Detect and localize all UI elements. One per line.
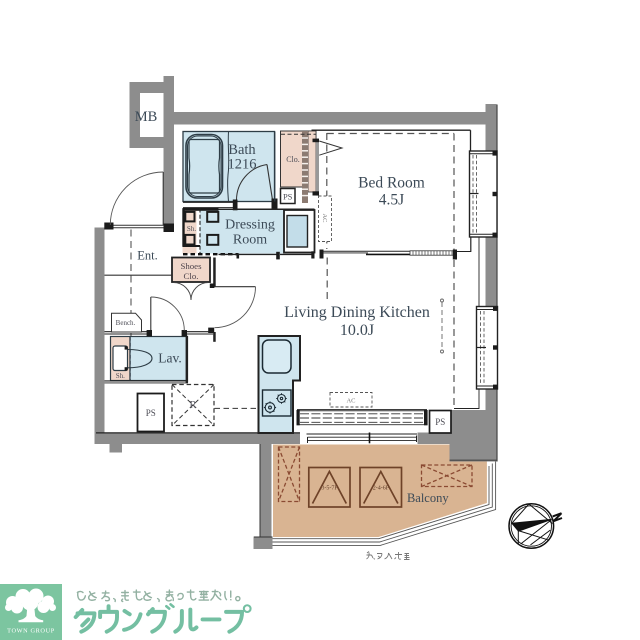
svg-text:Sh.: Sh.: [116, 372, 125, 380]
svg-text:1216: 1216: [228, 156, 257, 172]
svg-text:10.0J: 10.0J: [340, 322, 374, 339]
svg-text:MB: MB: [135, 109, 158, 125]
svg-text:PS: PS: [283, 192, 293, 202]
svg-text:Dressing: Dressing: [225, 218, 275, 233]
svg-text:3-5-7F: 3-5-7F: [321, 486, 338, 492]
svg-text:PS: PS: [146, 408, 156, 418]
svg-text:Clo.: Clo.: [184, 271, 199, 281]
svg-text:4.5J: 4.5J: [379, 192, 404, 209]
svg-text:AC: AC: [321, 213, 328, 222]
svg-text:AC: AC: [346, 397, 355, 404]
svg-text:R: R: [189, 400, 196, 411]
svg-text:Living Dining Kitchen: Living Dining Kitchen: [284, 304, 430, 321]
svg-text:Bed Room: Bed Room: [358, 175, 425, 192]
svg-text:Ent.: Ent.: [137, 249, 157, 263]
svg-text:Clo.: Clo.: [286, 155, 300, 164]
svg-text:2-4-6F: 2-4-6F: [373, 486, 390, 492]
svg-text:Room: Room: [233, 233, 267, 248]
svg-text:PS: PS: [435, 417, 445, 427]
svg-text:Bench.: Bench.: [116, 319, 136, 327]
svg-text:Shoes: Shoes: [180, 261, 202, 271]
svg-text:Balcony: Balcony: [407, 491, 449, 505]
svg-text:Sh.: Sh.: [187, 225, 196, 233]
svg-text:TOWN GROUP: TOWN GROUP: [7, 628, 55, 635]
svg-text:Lav.: Lav.: [158, 351, 182, 366]
